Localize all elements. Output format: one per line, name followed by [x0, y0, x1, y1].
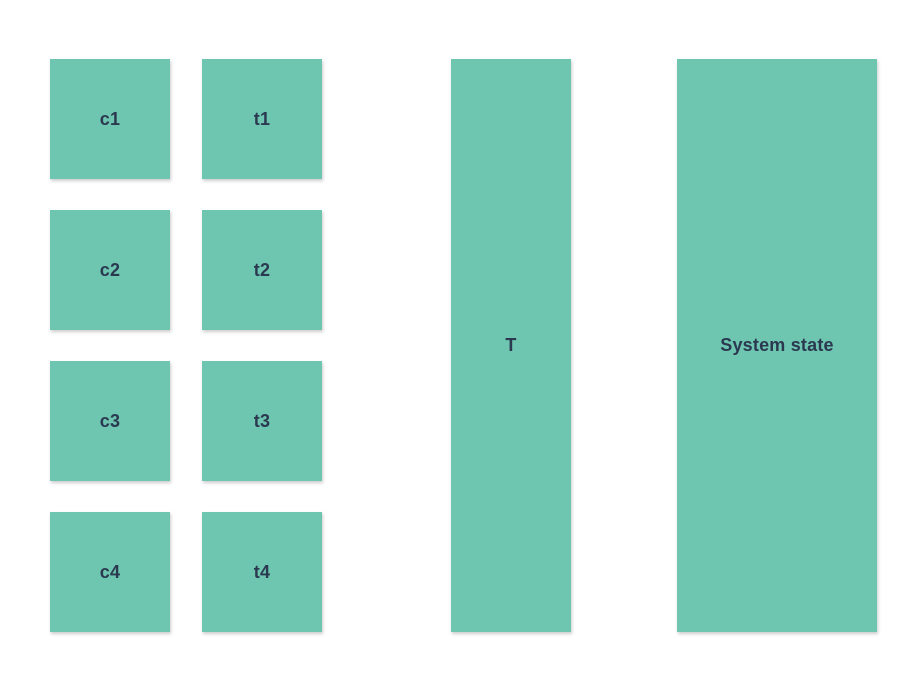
block-t4[interactable]: t4	[202, 512, 322, 632]
block-c4-label: c4	[100, 562, 120, 583]
block-c2[interactable]: c2	[50, 210, 170, 330]
diagram-canvas: c1 c2 c3 c4 t1 t2 t3 t4 T System state	[0, 0, 923, 692]
bar-T-label: T	[505, 335, 516, 356]
block-c3[interactable]: c3	[50, 361, 170, 481]
block-t2-label: t2	[254, 260, 270, 281]
block-c3-label: c3	[100, 411, 120, 432]
block-t3[interactable]: t3	[202, 361, 322, 481]
bar-system-state[interactable]: System state	[677, 59, 877, 632]
bar-T[interactable]: T	[451, 59, 571, 632]
block-c1[interactable]: c1	[50, 59, 170, 179]
block-t1[interactable]: t1	[202, 59, 322, 179]
block-c4[interactable]: c4	[50, 512, 170, 632]
block-t4-label: t4	[254, 562, 270, 583]
block-t3-label: t3	[254, 411, 270, 432]
block-c2-label: c2	[100, 260, 120, 281]
block-t1-label: t1	[254, 109, 270, 130]
block-c1-label: c1	[100, 109, 120, 130]
bar-system-state-label: System state	[720, 335, 833, 356]
block-t2[interactable]: t2	[202, 210, 322, 330]
